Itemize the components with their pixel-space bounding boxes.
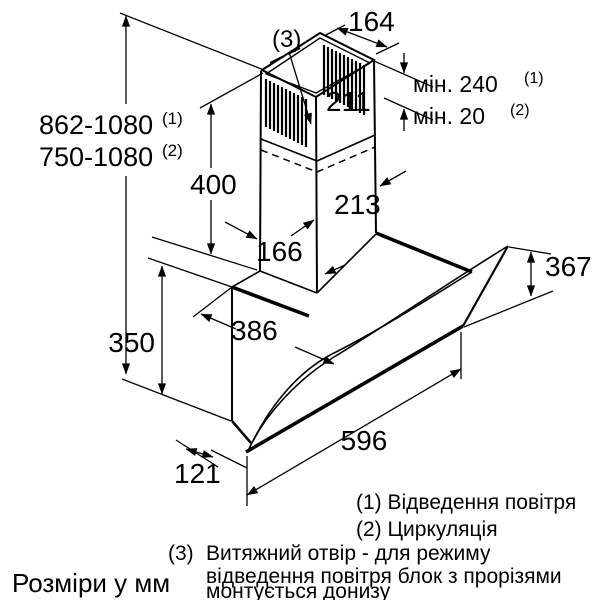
dimension-diagram-page: 164 211 213 166 400 367 350 386 596 121 … [0, 0, 600, 600]
dim-min-clearance-recirc-sup: (2) [510, 102, 530, 119]
dim-min-clearance-exhaust: мін. 240 [413, 71, 498, 97]
dim-glass-height: 367 [545, 251, 592, 282]
units-note: Розміри у мм [12, 568, 170, 598]
dim-bottom-depth: 121 [174, 458, 221, 489]
dim-lower-duct-width: 213 [334, 189, 381, 220]
duct-front-corner-edge [316, 97, 317, 293]
legend-item-3-num: (3) [168, 542, 194, 565]
dim-height-range-exhaust: 862-1080 [39, 110, 153, 140]
legend-item-2: (2) Циркуляція [356, 518, 498, 541]
dim-body-depth: 386 [231, 315, 278, 346]
dim-min-clearance-recirc: мін. 20 [413, 103, 485, 129]
dim-min-clearance-exhaust-sup: (1) [524, 70, 544, 87]
dim-height-range-recirc: 750-1080 [39, 142, 153, 172]
slot-ref-label: (3) [272, 26, 301, 53]
dim-body-height: 350 [108, 327, 155, 358]
legend-item-1: (1) Відведення повітря [356, 491, 576, 514]
legend-item-3-line3: монтується донизу [206, 580, 391, 600]
dim-chimney-height: 400 [190, 169, 237, 200]
dim-height-range-recirc-sup: (2) [162, 141, 183, 160]
dim-upper-duct-width: 211 [326, 86, 371, 117]
legend-item-3-line1: Витяжний отвір - для режиму [206, 542, 491, 565]
dim-top-width: 164 [348, 6, 395, 37]
hood-installation-diagram: 164 211 213 166 400 367 350 386 596 121 … [0, 0, 600, 600]
dim-height-range-exhaust-sup: (1) [162, 109, 183, 128]
dim-duct-depth: 166 [256, 236, 303, 267]
dim-hood-width: 596 [341, 425, 388, 456]
